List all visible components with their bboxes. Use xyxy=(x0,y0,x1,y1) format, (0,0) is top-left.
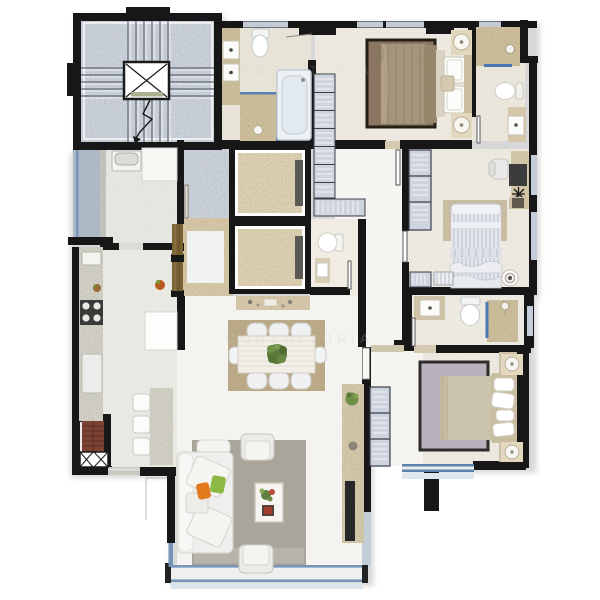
svg-text:CONSULTORIA: CONSULTORIA xyxy=(226,331,374,346)
svg-text:CONSULTORIA: CONSULTORIA xyxy=(226,63,374,78)
